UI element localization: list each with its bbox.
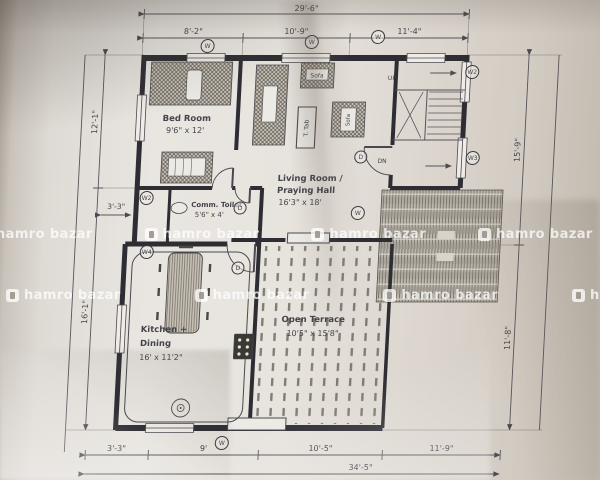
living-size: 16'3" x 18' — [278, 198, 322, 207]
tea-table: T. Tab — [296, 107, 316, 148]
sofa-top-label: Sofa — [310, 73, 324, 80]
dim-right-bottom: 11'-8" — [503, 326, 513, 350]
door-bedroom — [212, 168, 233, 188]
dim-top-seg3: 11'-4" — [397, 27, 422, 36]
svg-text:D: D — [235, 265, 240, 272]
living-label-1: Living Room / — [277, 174, 343, 184]
toilet-basin — [171, 203, 188, 214]
dim-top-seg2: 10'-9" — [284, 27, 309, 36]
tea-table-label: T. Tab — [303, 119, 311, 137]
window-marker: W2 — [465, 66, 479, 79]
sofa-right-label: Sofa — [345, 114, 352, 126]
kitchen-label-2: Dining — [140, 339, 172, 349]
window-left-bedroom — [135, 95, 146, 141]
window-top-living — [282, 54, 330, 63]
svg-text:W: W — [355, 210, 361, 217]
window-marker: W3 — [466, 152, 480, 165]
svg-text:W4: W4 — [142, 249, 152, 256]
svg-text:W: W — [204, 43, 210, 50]
kitchen-label-1: Kitchen + — [140, 325, 187, 335]
dim-bottom-total: 34'-5" — [348, 463, 373, 472]
stair-dn-label: DN — [377, 158, 386, 165]
door-marker: D — [232, 262, 245, 274]
window-marker: W4 — [140, 246, 154, 259]
dim-top-total: 29'-6" — [294, 4, 319, 13]
showcase — [252, 65, 288, 145]
svg-text:D: D — [358, 154, 363, 161]
dim-left-top: 12'-1" — [90, 110, 100, 134]
door-marker: D — [354, 151, 367, 163]
svg-text:D: D — [238, 205, 243, 212]
dining-table — [157, 247, 212, 333]
svg-text:W: W — [375, 34, 381, 41]
watermark-text: hamro bazar — [590, 288, 600, 303]
window-marker: W2 — [140, 192, 154, 205]
terrace-size: 10'5" x 15'8" — [286, 329, 339, 338]
living-label-2: Praying Hall — [277, 186, 336, 196]
window-bottom-kitchen — [145, 424, 193, 433]
dim-bottom-seg1: 3'-3" — [107, 444, 126, 453]
dim-top-seg1: 8'-2" — [184, 27, 203, 36]
kitchen-sink — [171, 399, 190, 417]
terrace-label: Open Terrace — [281, 315, 345, 325]
window-marker: W — [215, 437, 229, 450]
dim-left-bottom: 16'-1" — [80, 300, 90, 324]
dim-left-small: 3'-3" — [107, 202, 125, 211]
window-left-kitchen — [115, 305, 127, 353]
bedroom-size: 9'6" x 12' — [166, 126, 205, 135]
window-top-bedroom — [187, 54, 225, 63]
floor-plan-drawing: 29'-6" 8'-2" 10'-9" 11'-4" 3'-3" 9' 10'-… — [0, 0, 600, 480]
dim-bottom-seg2: 9' — [200, 444, 208, 453]
window-marker: W — [201, 40, 215, 53]
wardrobe — [160, 152, 213, 183]
svg-text:W: W — [219, 440, 225, 447]
window-top-stair — [407, 54, 445, 63]
door-marker: D — [234, 202, 247, 214]
sofa-top: Sofa — [300, 63, 334, 88]
door-terrace-living — [287, 233, 330, 243]
window-marker: W — [305, 36, 319, 49]
dim-right-top: 15'-9" — [513, 138, 523, 162]
floor-plan-photo: 29'-6" 8'-2" 10'-9" 11'-4" 3'-3" 9' 10'-… — [0, 0, 600, 480]
dim-bottom-seg4: 11'-9" — [429, 444, 454, 453]
gas-stove — [233, 334, 253, 359]
bed — [149, 62, 232, 105]
lower-roof-hatched-area — [376, 190, 503, 302]
toilet-size: 5'6" x 4' — [195, 211, 224, 219]
svg-text:W2: W2 — [142, 195, 152, 202]
svg-text:W3: W3 — [468, 155, 478, 162]
svg-text:W: W — [309, 39, 315, 46]
window-right-lower — [456, 138, 467, 178]
dim-bottom-seg3: 10'-5" — [308, 444, 333, 453]
window-marker: W — [351, 207, 365, 220]
svg-text:W2: W2 — [467, 69, 477, 76]
bedroom-label: Bed Room — [162, 114, 211, 124]
kitchen-size: 16' x 11'2" — [139, 353, 183, 362]
staircase: UP DN — [377, 73, 466, 166]
window-marker: W — [371, 31, 385, 44]
sofa-right: Sofa — [331, 102, 366, 137]
stair-up-label: UP — [388, 75, 397, 82]
